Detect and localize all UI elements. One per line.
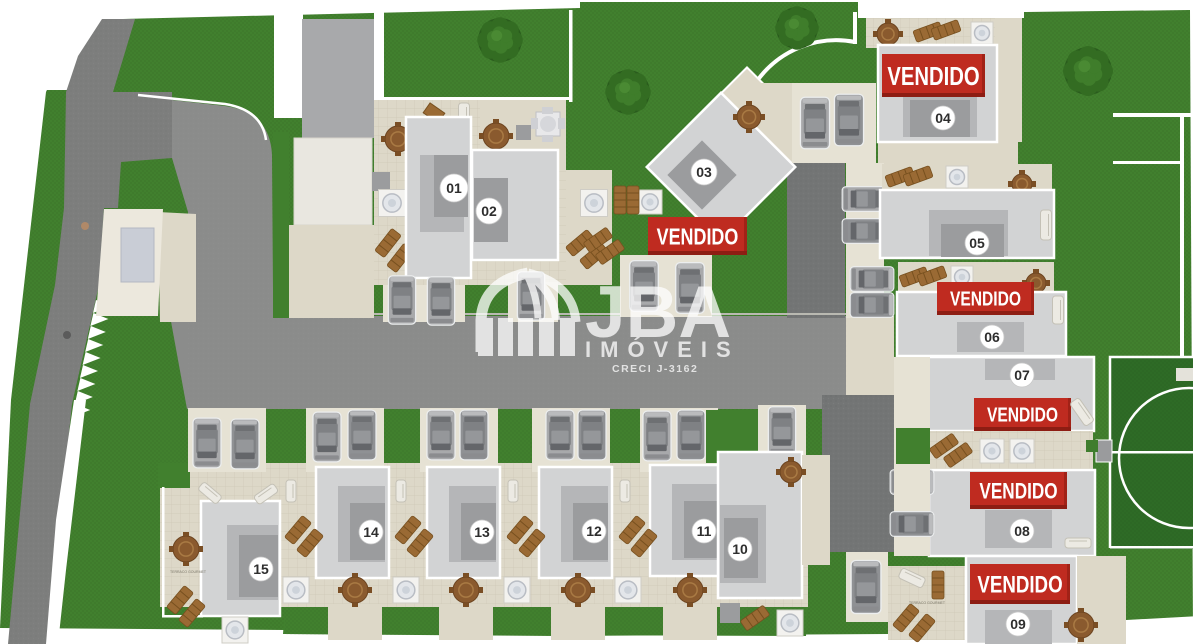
svg-text:02: 02 (481, 203, 497, 219)
svg-text:05: 05 (969, 235, 985, 251)
svg-text:04: 04 (935, 110, 951, 126)
svg-text:10: 10 (732, 541, 748, 557)
svg-text:11: 11 (697, 523, 712, 539)
svg-text:07: 07 (1014, 367, 1030, 383)
svg-text:TERRACO GOURMET: TERRACO GOURMET (170, 570, 207, 574)
svg-text:06: 06 (984, 329, 1000, 345)
svg-text:VENDIDO: VENDIDO (979, 479, 1057, 504)
svg-text:13: 13 (474, 524, 490, 540)
svg-text:15: 15 (253, 561, 269, 577)
svg-text:VENDIDO: VENDIDO (887, 61, 979, 90)
svg-text:01: 01 (446, 180, 462, 196)
svg-text:TERRACO GOURMET: TERRACO GOURMET (909, 601, 946, 605)
svg-text:14: 14 (363, 524, 379, 540)
svg-text:12: 12 (586, 523, 602, 539)
svg-text:VENDIDO: VENDIDO (950, 288, 1021, 310)
svg-text:VENDIDO: VENDIDO (657, 224, 739, 250)
svg-text:VENDIDO: VENDIDO (987, 404, 1058, 426)
svg-text:CRECI J-3162: CRECI J-3162 (612, 363, 698, 375)
svg-text:08: 08 (1014, 523, 1030, 539)
svg-text:03: 03 (696, 164, 712, 180)
svg-text:09: 09 (1010, 616, 1026, 632)
svg-text:IMÓVEIS: IMÓVEIS (585, 337, 740, 362)
svg-text:VENDIDO: VENDIDO (977, 571, 1062, 598)
